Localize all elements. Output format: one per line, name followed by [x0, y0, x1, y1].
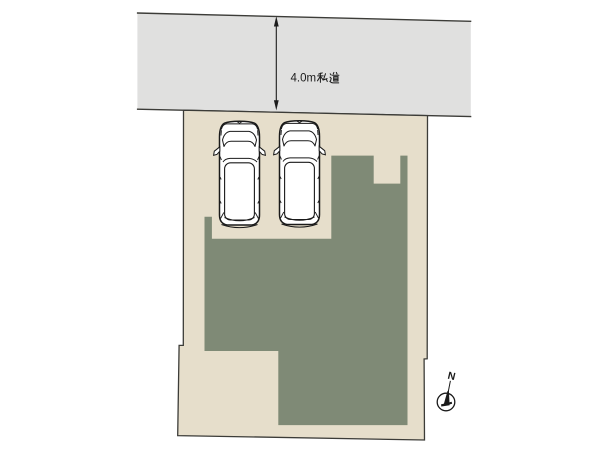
svg-text:4.0m: 4.0m: [291, 73, 317, 85]
svg-text:N: N: [446, 370, 456, 383]
